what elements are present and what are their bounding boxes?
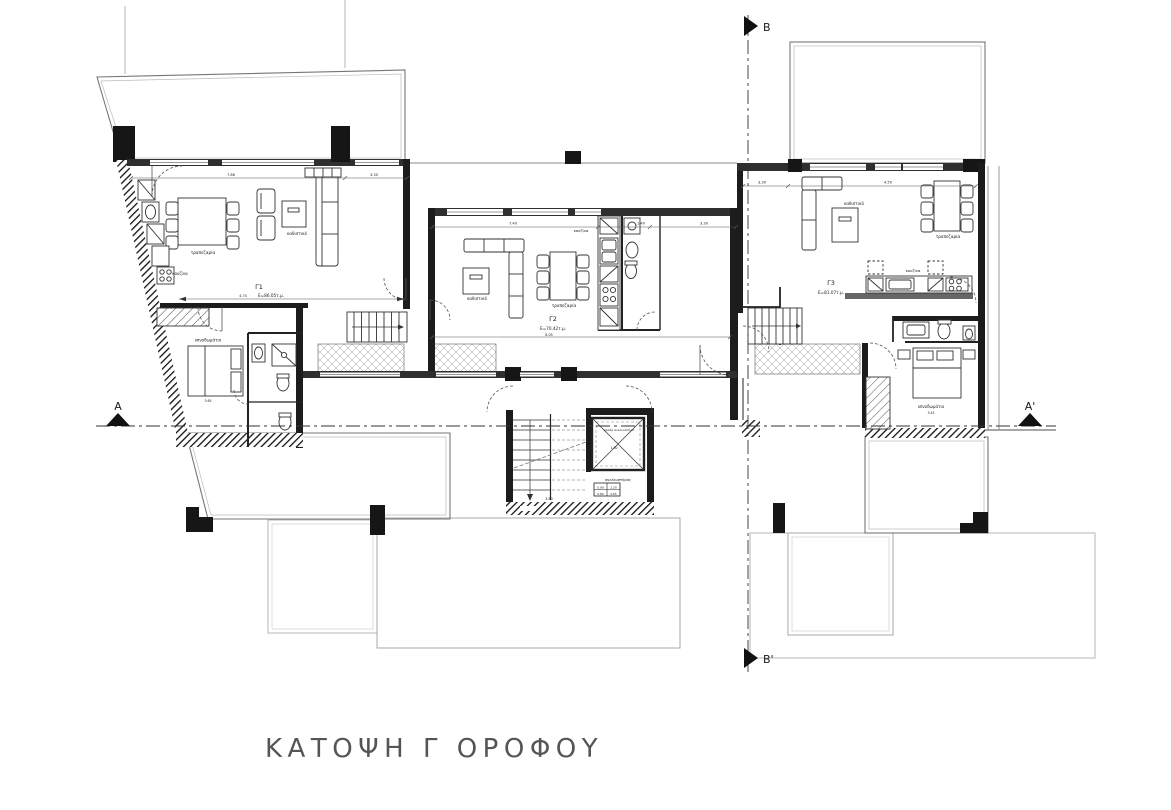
elevator-table-r1c1: 0.90 [597, 486, 604, 490]
apartment-g3-dining-label: τραπεζαρία [936, 234, 961, 239]
apartment-g2-furniture [463, 216, 640, 330]
apartment-g3-dim-450: 4.50 [884, 181, 893, 185]
drawing-title: ΚΑΤΟΨΗ Γ ΟΡΟΦΟΥ [265, 734, 603, 764]
apartment-g1-living-label: καθιστικό [287, 231, 307, 236]
section-marker-b-top-icon [744, 16, 758, 36]
elevator-table-r2c2: 2.65 [610, 492, 617, 496]
elevator-shaft-label: φρεάρ ανελκυστήρα [604, 428, 634, 432]
drawing-sheet: Γ1 Ε=86.05τ.μ. 4.74 7.86 3.30 τραπεζαρία… [0, 0, 1171, 810]
apartment-g1-dim-330: 3.30 [370, 173, 379, 177]
apartment-g2-dim-740: 7.40 [509, 222, 518, 226]
elevator-table-r2c1: 0.80 [597, 492, 604, 496]
apartment-g2-dim-330: 3.30 [700, 222, 709, 226]
apartment-g1-dim-786: 7.86 [227, 173, 236, 177]
apartment-g2-dim-140: 1.40 [637, 222, 646, 226]
apartment-g1-dim-365: 3.65 [204, 399, 211, 403]
section-label-a-prime: A' [1025, 400, 1036, 413]
floor-plan-drawing: Γ1 Ε=86.05τ.μ. 4.74 7.86 3.30 τραπεζαρία… [0, 0, 1171, 810]
apartment-g3-bedroom-label: υπνοδωμάτιο [918, 404, 945, 409]
apartment-g1-bedroom-label: υπνοδωμάτιο [195, 338, 222, 343]
apartment-g1-dining-label: τραπεζαρία [191, 250, 216, 255]
apartment-g1-id-label: Γ1 [255, 283, 263, 291]
apartment-g3-kitchen-label: κουζίνα [906, 268, 921, 273]
section-label-a: A [114, 400, 122, 413]
apartment-g2-kitchen-label: κουζίνα [574, 228, 589, 233]
apartment-g2-dining-label: τραπεζαρία [552, 303, 577, 308]
section-marker-a-right-icon [1018, 413, 1042, 426]
apartment-g2-living-label: καθιστικό [467, 296, 487, 301]
apartment-g3-dim-345: 3.45 [927, 411, 934, 415]
apartment-g3-furniture [748, 177, 975, 429]
apartment-g3-id-label: Γ3 [827, 279, 835, 287]
elevator-dim-100: 1.00 [610, 446, 617, 450]
core-stairs [513, 414, 586, 501]
core-dim-380: 3.80 [545, 497, 553, 501]
walkway-tiles [318, 344, 860, 374]
elevator-table-r1c2: 2.20 [610, 486, 617, 490]
section-marker-b-bottom-icon [744, 648, 758, 668]
apartment-g2-dim-805: 8.05 [545, 333, 553, 337]
apartment-g1-area-label: Ε=86.05τ.μ. [258, 293, 284, 298]
apartment-g2-area-label: Ε=70.42τ.μ. [540, 326, 566, 331]
section-marker-a-left-icon [106, 413, 130, 426]
apartment-g3-living-label: καθιστικό [844, 201, 864, 206]
apartment-g1-dim-474: 4.74 [239, 294, 247, 298]
apartment-g2-id-label: Γ2 [549, 315, 557, 323]
apartment-g1-kitchen-label: κουζίνα [172, 271, 188, 276]
apartment-g3-area-label: Ε=81.07τ.μ. [818, 290, 844, 295]
elevator-label: ανελκυστήρας [605, 478, 631, 482]
section-lines: A A' B B' [96, 15, 1056, 672]
apartment-g3-dim-330: 3.30 [758, 181, 767, 185]
section-label-b-prime: B' [763, 653, 774, 666]
section-label-b: B [763, 21, 771, 34]
